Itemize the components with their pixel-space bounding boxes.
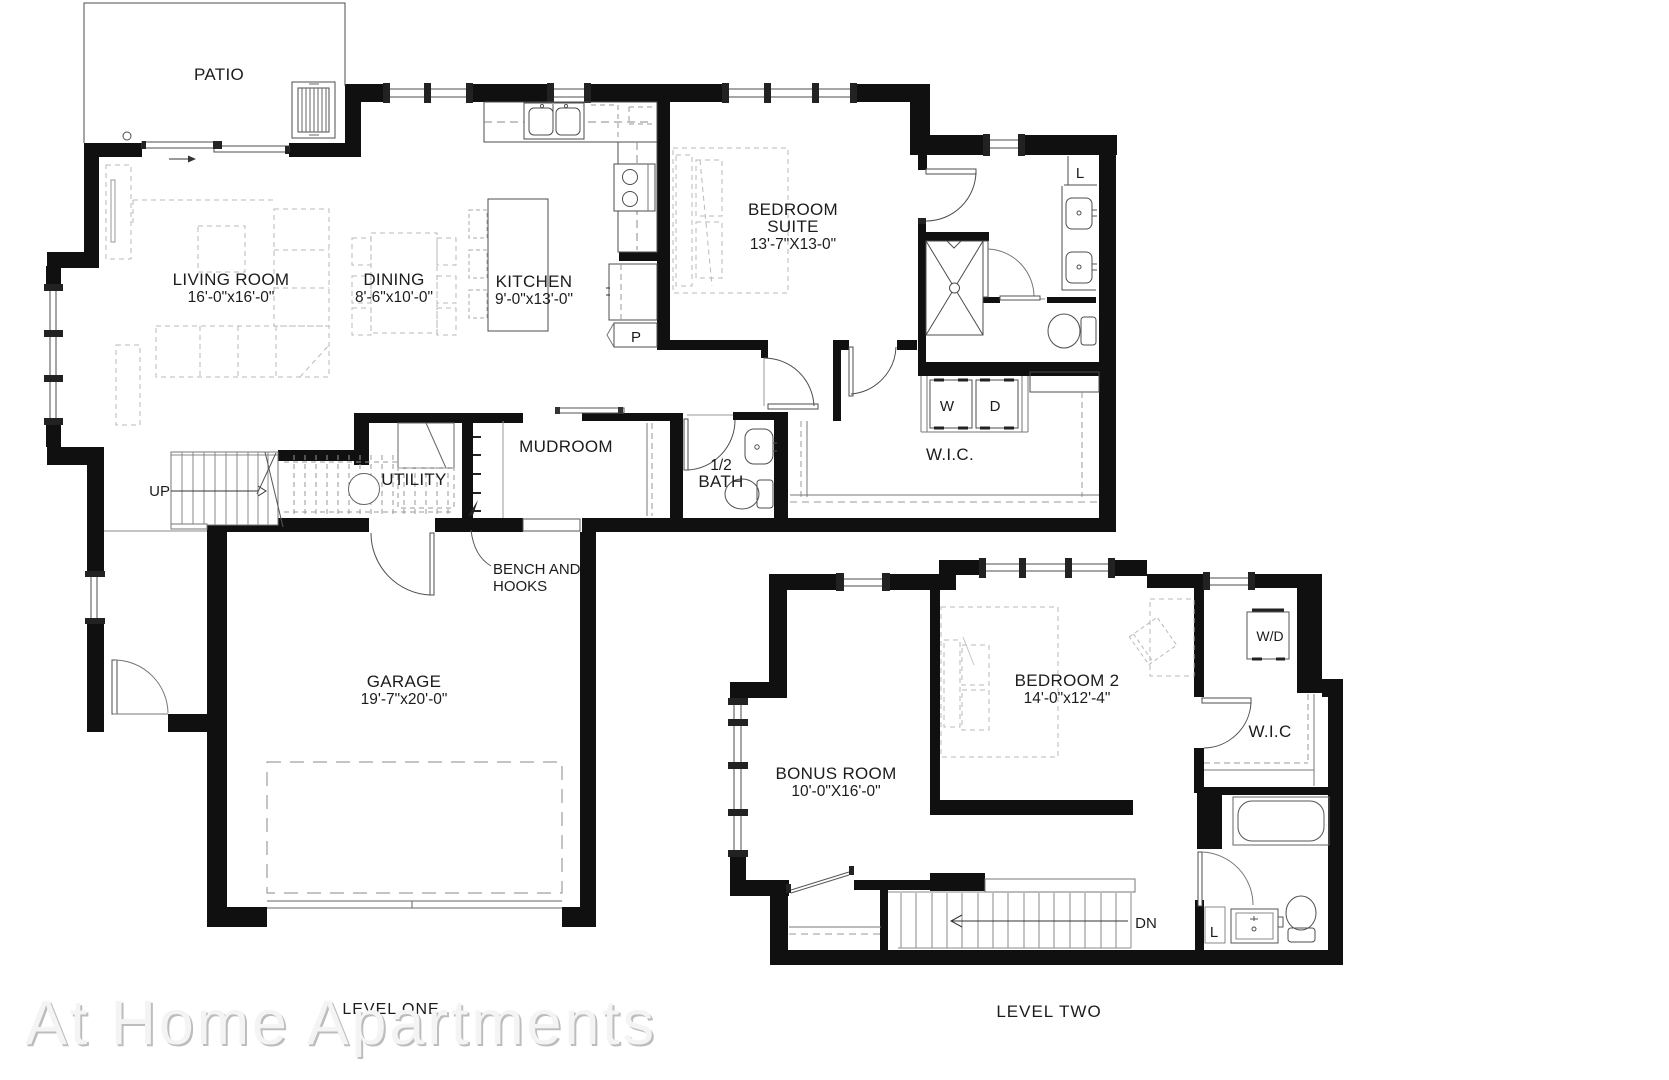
- svg-text:W.I.C.: W.I.C.: [926, 445, 974, 464]
- svg-text:BONUS ROOM: BONUS ROOM: [775, 764, 896, 783]
- svg-text:10'-0"X16'-0": 10'-0"X16'-0": [791, 783, 880, 800]
- svg-text:At Home Apartments: At Home Apartments: [25, 988, 655, 1058]
- svg-text:W.I.C: W.I.C: [1248, 722, 1291, 741]
- svg-text:DINING: DINING: [363, 270, 424, 289]
- svg-text:9'-0"x13'-0": 9'-0"x13'-0": [495, 291, 573, 308]
- svg-text:BENCH AND: BENCH AND: [493, 561, 581, 578]
- svg-text:MUDROOM: MUDROOM: [519, 437, 613, 456]
- svg-text:14'-0"x12'-4": 14'-0"x12'-4": [1024, 690, 1111, 707]
- svg-text:13'-7"X13-0": 13'-7"X13-0": [750, 236, 836, 253]
- svg-text:16'-0"x16'-0": 16'-0"x16'-0": [188, 289, 275, 306]
- svg-text:LIVING ROOM: LIVING ROOM: [173, 270, 290, 289]
- svg-text:W/D: W/D: [1256, 628, 1283, 644]
- svg-text:SUITE: SUITE: [767, 217, 819, 236]
- svg-text:D: D: [990, 398, 1001, 415]
- svg-text:DN: DN: [1135, 915, 1157, 932]
- svg-text:W: W: [940, 398, 955, 415]
- svg-text:P: P: [631, 329, 641, 346]
- svg-text:PATIO: PATIO: [194, 65, 244, 84]
- svg-text:L: L: [1076, 165, 1084, 182]
- svg-text:UP: UP: [149, 483, 170, 500]
- svg-text:LEVEL TWO: LEVEL TWO: [996, 1002, 1101, 1021]
- svg-text:8'-6"x10'-0": 8'-6"x10'-0": [355, 289, 433, 306]
- svg-text:UTILITY: UTILITY: [381, 470, 446, 489]
- svg-text:L: L: [1210, 924, 1218, 941]
- svg-text:HOOKS: HOOKS: [493, 578, 547, 595]
- svg-text:BEDROOM 2: BEDROOM 2: [1015, 671, 1120, 690]
- svg-text:GARAGE: GARAGE: [367, 672, 442, 691]
- svg-text:BATH: BATH: [698, 472, 743, 491]
- svg-text:19'-7"x20'-0": 19'-7"x20'-0": [361, 691, 448, 708]
- svg-text:KITCHEN: KITCHEN: [496, 272, 573, 291]
